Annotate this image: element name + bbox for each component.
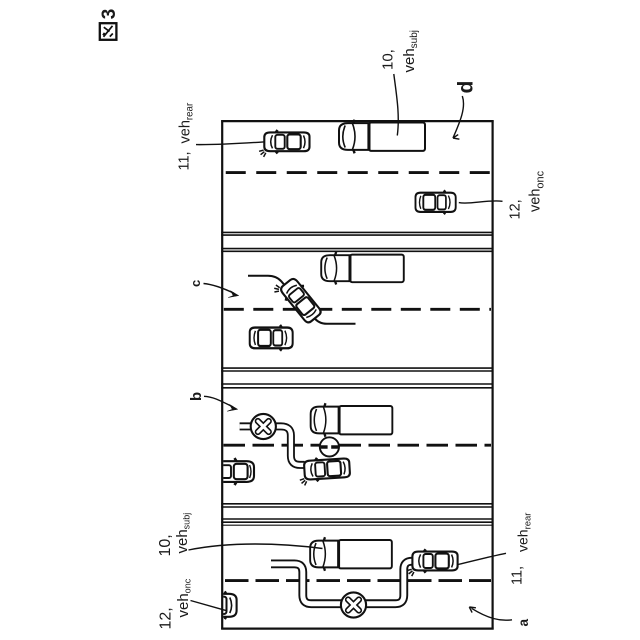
svg-text:11,: 11, <box>177 151 193 170</box>
svg-text:d: d <box>455 81 478 94</box>
svg-text:b: b <box>188 392 205 401</box>
svg-text:a: a <box>516 619 531 627</box>
svg-text:10,: 10, <box>380 49 397 70</box>
svg-text:c: c <box>188 280 203 287</box>
svg-text:3: 3 <box>99 9 120 20</box>
svg-text:12,: 12, <box>508 199 524 219</box>
svg-text:10,: 10, <box>157 534 174 556</box>
svg-text:12,: 12, <box>158 607 175 629</box>
svg-text:11,: 11, <box>510 566 526 585</box>
